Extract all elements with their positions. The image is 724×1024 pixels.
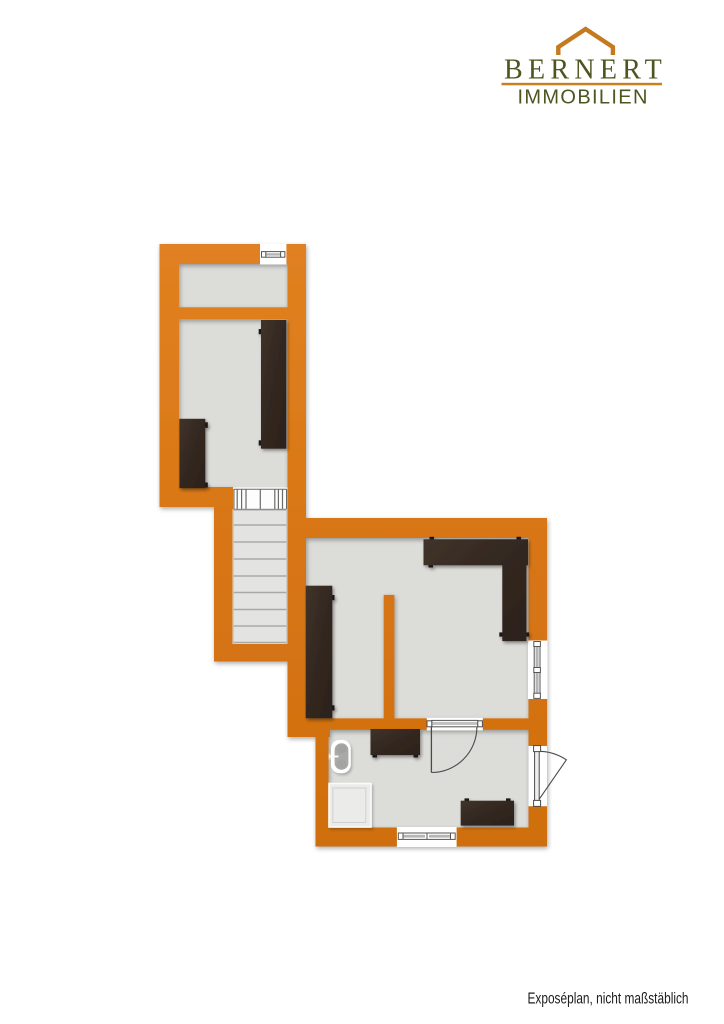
svg-text:BERNERT: BERNERT	[504, 55, 667, 86]
svg-text:Exposéplan, nicht maßstäblich: Exposéplan, nicht maßstäblich	[528, 991, 689, 1008]
svg-text:IMMOBILIEN: IMMOBILIEN	[518, 87, 649, 109]
